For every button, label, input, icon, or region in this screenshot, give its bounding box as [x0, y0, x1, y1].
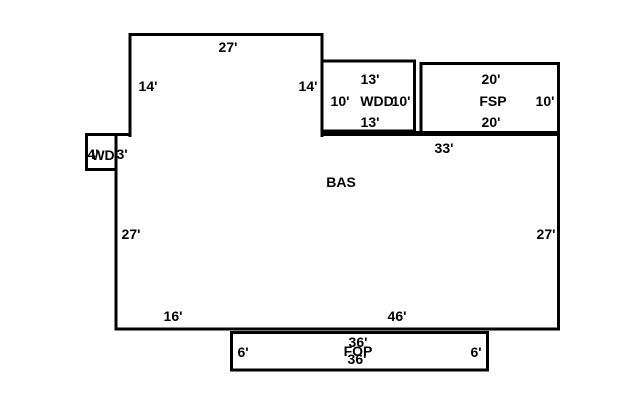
dim-bas-right: 27' [537, 227, 556, 241]
dim-wdd-top: 13' [361, 72, 380, 86]
dim-bas-bottom-right: 46' [388, 309, 407, 323]
dim-fop-left: 6' [237, 345, 248, 359]
dim-fsp-top: 20' [482, 72, 501, 86]
dim-wdd-right: 10' [392, 94, 411, 108]
area-label-bas: BAS [326, 175, 356, 189]
area-label-wdd: WDD [360, 94, 393, 108]
area-label-fsp: FSP [479, 94, 506, 108]
area-label-wd: WD [91, 148, 114, 162]
dim-tower-right: 14' [299, 79, 318, 93]
dim-bas-left: 27' [122, 227, 141, 241]
dim-tower-left: 14' [139, 79, 158, 93]
wall-bas-outline [116, 133, 559, 329]
floorplan-sketch: 27' 14' 14' 13' 10' WDD 10' 13' 20' FSP … [0, 0, 640, 415]
dim-fsp-right: 10' [536, 94, 555, 108]
dim-wdd-left: 10' [331, 94, 350, 108]
dim-fop-bottom: 36' [348, 352, 367, 366]
dim-bas-top: 33' [435, 141, 454, 155]
dim-tower-top: 27' [219, 40, 238, 54]
dim-wdd-bottom: 13' [361, 115, 380, 129]
dim-bas-bottom-left: 16' [164, 309, 183, 323]
dim-fop-right: 6' [470, 345, 481, 359]
floorplan-walls [0, 0, 640, 415]
dim-fsp-bottom: 20' [482, 115, 501, 129]
dim-wd-height: 3' [116, 147, 127, 161]
